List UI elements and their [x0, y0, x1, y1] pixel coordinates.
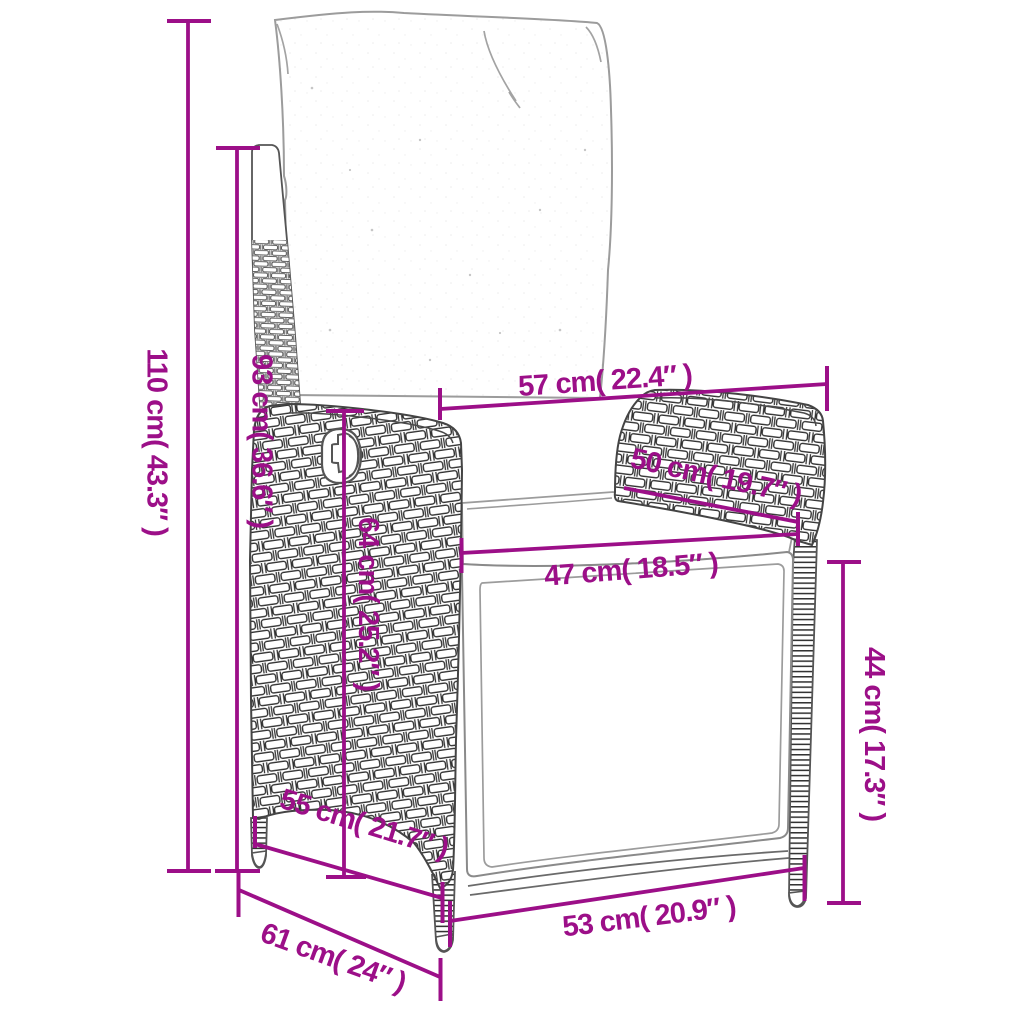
svg-text:53 cm( 20.9″ ): 53 cm( 20.9″ ) — [561, 890, 738, 943]
svg-text:64 cm( 25.2″ ): 64 cm( 25.2″ ) — [352, 517, 384, 691]
svg-text:110 cm( 43.3″ ): 110 cm( 43.3″ ) — [141, 348, 173, 536]
svg-text:93 cm( 36.6″ ): 93 cm( 36.6″ ) — [246, 354, 278, 528]
svg-text:44 cm( 17.3″ ): 44 cm( 17.3″ ) — [858, 647, 890, 821]
